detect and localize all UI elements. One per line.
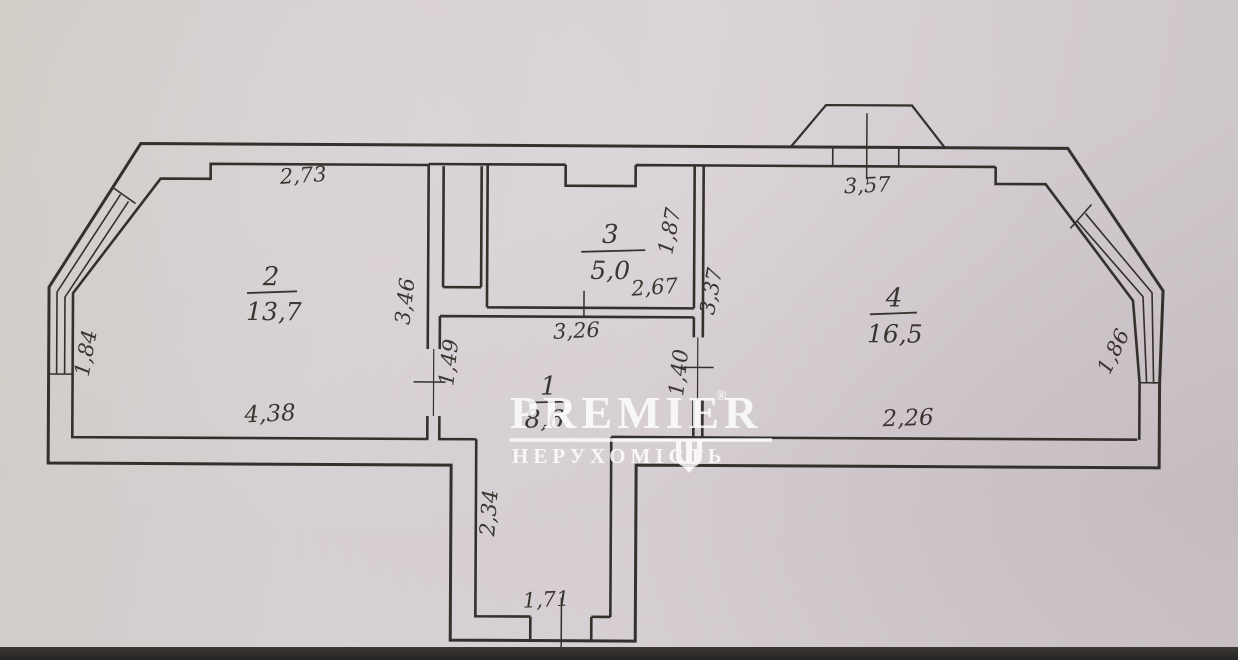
room4-inner-walls [994, 167, 1140, 440]
watermark: PREMIER ® НЕРУХОМІСТЬ [510, 387, 772, 473]
dim-hall-top: 3,26 [553, 318, 601, 344]
room2-number: 2 [262, 262, 280, 292]
dim-hall-lower-height: 2,34 [475, 489, 503, 538]
floor-plan-drawing: 2,73 3,57 1,87 2,67 3,37 3,46 3,26 1,49 … [0, 0, 1238, 660]
room4-label: 4 16,5 [867, 283, 923, 348]
photo-edge-shadow [0, 647, 1238, 660]
room4-number: 4 [885, 283, 903, 313]
dim-left-window: 1,84 [70, 328, 102, 378]
room3-label: 3 5,0 [581, 220, 645, 285]
window-sills [49, 374, 1160, 383]
dim-room3-right-wall: 1,87 [653, 205, 685, 256]
dim-room2-bottom: 4,38 [243, 400, 296, 428]
balcony-window [833, 147, 899, 165]
dim-room2-door: 1,49 [434, 338, 463, 387]
dim-right-window: 1,86 [1092, 325, 1134, 378]
duct-shaft [443, 166, 482, 287]
room4-area: 16,5 [867, 319, 923, 348]
dim-room4-left-wall: 3,37 [695, 265, 727, 316]
dim-room4-bottom: 2,26 [881, 405, 934, 433]
floor-plan-photo: 2,73 3,57 1,87 2,67 3,37 3,46 3,26 1,49 … [0, 0, 1238, 660]
dim-entry-width: 1,71 [522, 587, 570, 613]
dim-room3-width: 2,67 [629, 274, 679, 301]
room2-label: 2 13,7 [246, 262, 302, 326]
walls [47, 101, 1164, 644]
top-inner-walls [429, 164, 996, 188]
dim-balcony-top: 3,57 [843, 172, 891, 198]
trident-icon [676, 440, 702, 473]
dim-room2-top: 2,73 [278, 162, 327, 189]
balcony-outline [791, 105, 945, 148]
watermark-registered-icon: ® [716, 389, 727, 404]
room3-area: 5,0 [590, 256, 630, 285]
dim-room2-right-wall: 3,46 [391, 277, 420, 326]
room2-area: 13,7 [246, 297, 302, 326]
room3-number: 3 [602, 220, 619, 250]
